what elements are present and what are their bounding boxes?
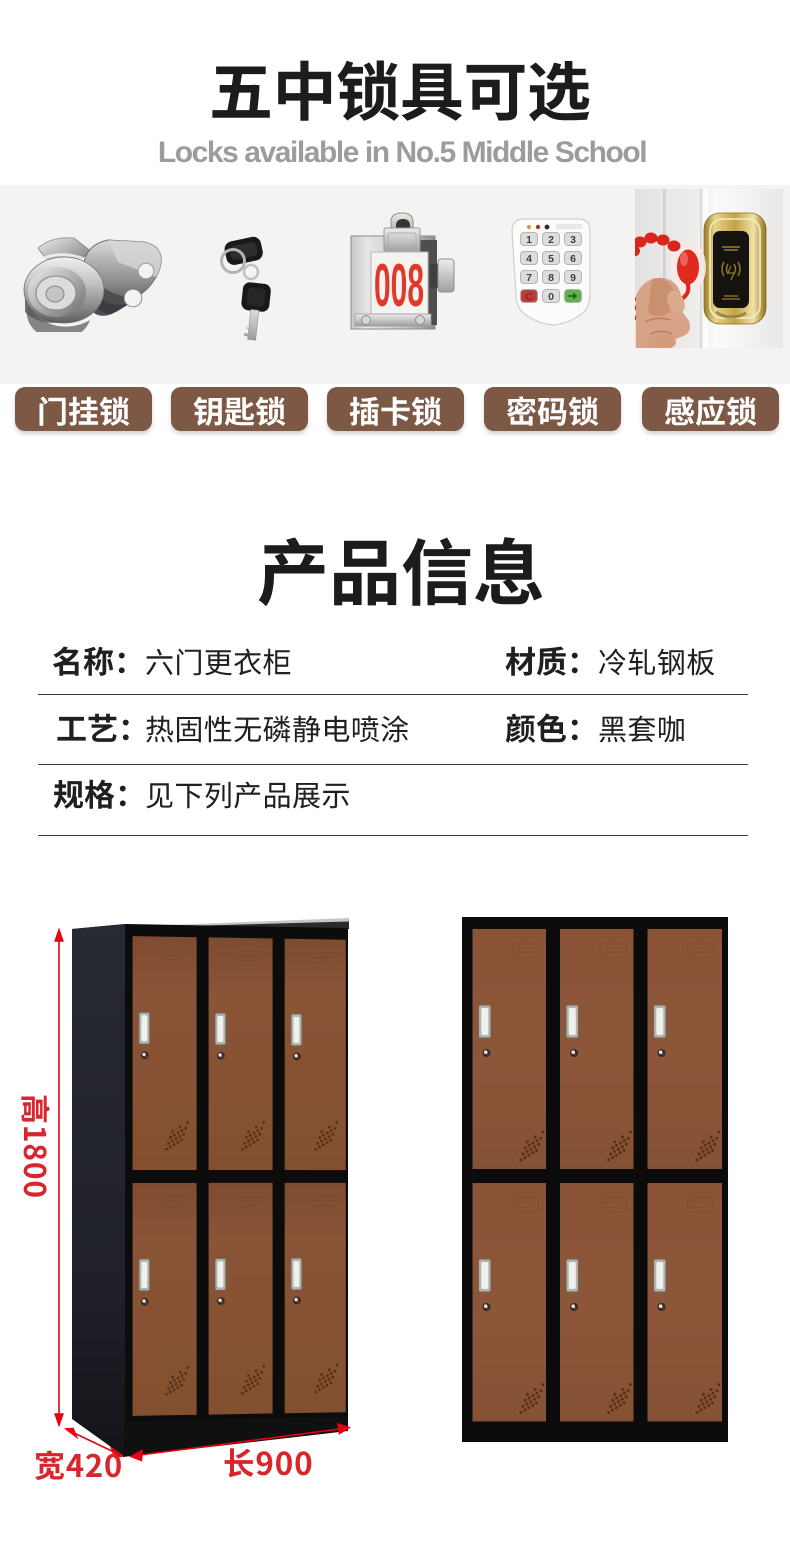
svg-text:C: C — [525, 291, 533, 303]
svg-text:5: 5 — [548, 253, 554, 265]
svg-text:0: 0 — [548, 291, 554, 303]
svg-text:6: 6 — [570, 253, 576, 265]
svg-text:7: 7 — [526, 272, 532, 284]
svg-text:4: 4 — [526, 253, 532, 265]
svg-text:1: 1 — [526, 234, 532, 246]
svg-text:008: 008 — [374, 252, 424, 319]
svg-text:8: 8 — [548, 272, 554, 284]
svg-text:2: 2 — [548, 234, 554, 246]
svg-text:9: 9 — [570, 272, 576, 284]
svg-text:3: 3 — [570, 234, 576, 246]
